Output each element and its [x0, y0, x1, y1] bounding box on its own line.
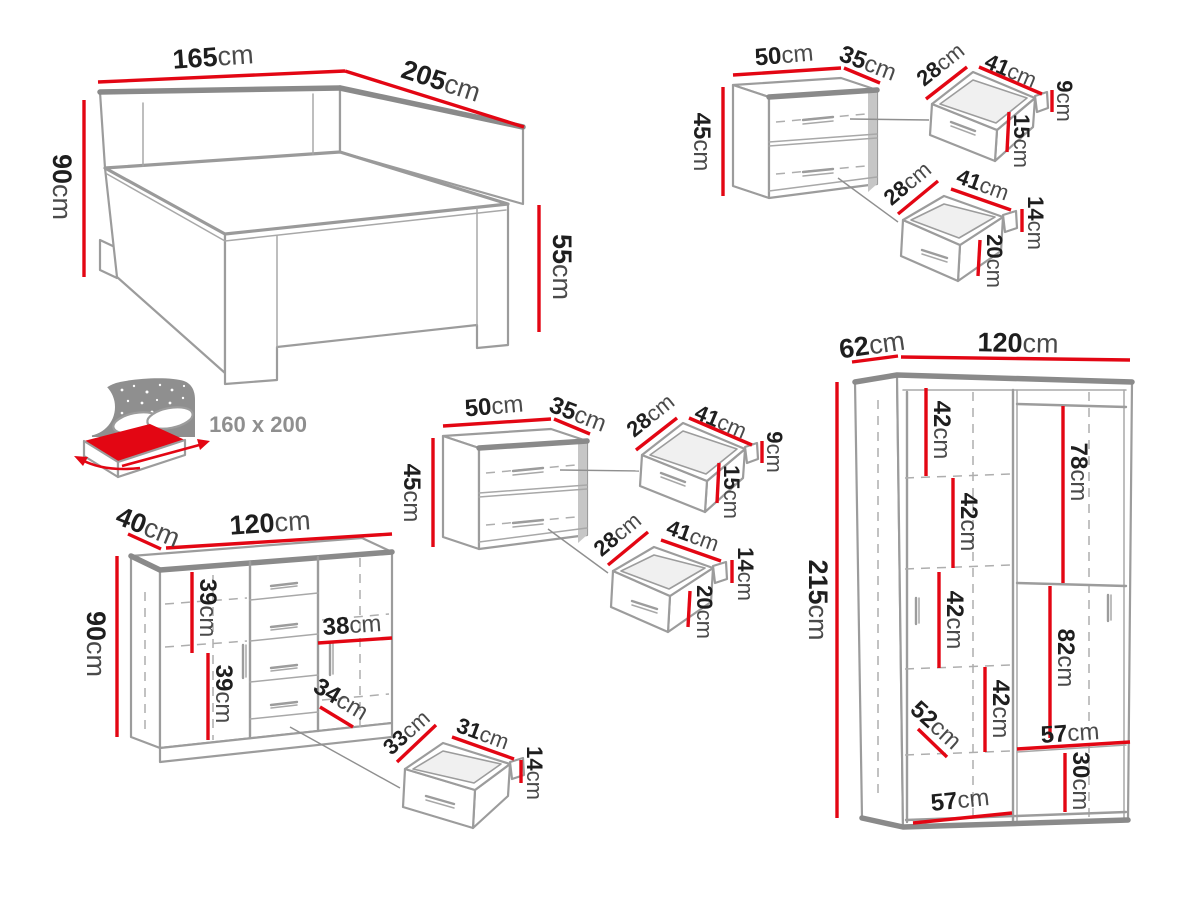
nightstand-front	[479, 441, 587, 549]
nightstand-left-side	[443, 436, 479, 549]
chest-depth-label: 40cm	[112, 501, 184, 554]
bottom-drawer-back-height-label: 14cm	[1024, 196, 1049, 250]
furniture-dimension-diagram: 165cm 205cm 90cm 55cm 160 x 200	[0, 0, 1203, 902]
diagram-svg: 165cm 205cm 90cm 55cm 160 x 200	[0, 0, 1203, 902]
wardrobe-gap4-label: 42cm	[988, 680, 1015, 739]
chest-drawer: 33cm 31cm 14cm	[378, 705, 548, 828]
nightstand-bottom-drawer: 28cm 41cm 14cm 20cm	[878, 156, 1048, 288]
wardrobe-bottom-gap-label: 30cm	[1068, 752, 1095, 811]
nightstand-unit-1: 50cm 35cm 45cm 28cm 41cm 9cm 15cm	[689, 37, 1078, 288]
bottom-drawer-front-height-label: 20cm	[693, 585, 718, 639]
nightstand-left-side	[733, 85, 769, 198]
nightstand-height-label: 45cm	[399, 464, 426, 523]
chest-inner1-label: 39cm	[195, 579, 222, 638]
chest-drawing: 40cm 120cm 90cm 39cm 39cm 38cm 34cm 33cm…	[81, 501, 548, 828]
bottom-drawer-front-height-label: 20cm	[983, 234, 1008, 288]
nightstand-width-label: 50cm	[464, 390, 525, 422]
top-drawer-front-height-label: 15cm	[720, 465, 745, 519]
wardrobe-drawing: 62cm 120cm 215cm 42cm 42cm 42cm 42cm 78c…	[803, 326, 1132, 828]
top-drawer-back-height-label: 9cm	[1053, 80, 1078, 122]
chest-inner2-label: 39cm	[211, 665, 238, 724]
bottom-drawer-depth-label: 28cm	[878, 156, 935, 210]
top-drawer-back-height-label: 9cm	[763, 431, 788, 473]
wardrobe-depth-label: 62cm	[837, 326, 907, 365]
nightstand-unit-2: 50cm 35cm 45cm 28cm 41cm 9cm 15cm	[399, 388, 788, 639]
chest-left-side	[131, 556, 160, 748]
chest-width-label: 120cm	[229, 505, 312, 541]
wardrobe-hanging-top-label: 78cm	[1066, 443, 1093, 502]
wardrobe-right-shelf-width-label: 57cm	[1040, 717, 1100, 748]
bottom-drawer-back-height-label: 14cm	[734, 547, 759, 601]
bed-width-label: 165cm	[172, 39, 255, 75]
nightstand-height-label: 45cm	[689, 113, 716, 172]
wardrobe-left-side	[855, 375, 903, 827]
moon-crescent	[57, 378, 115, 436]
top-drawer-front-height-label: 15cm	[1010, 114, 1035, 168]
chest-drawer-height-label: 14cm	[523, 746, 548, 800]
wardrobe-gap1-label: 42cm	[929, 401, 956, 460]
nightstand-front	[769, 90, 877, 198]
nightstand-top-drawer: 28cm 41cm 9cm 15cm	[621, 388, 787, 519]
bed-height-label: 90cm	[47, 154, 77, 220]
nightstand-top-drawer: 28cm 41cm 9cm 15cm	[911, 37, 1077, 168]
wardrobe-width-label: 120cm	[977, 327, 1059, 358]
wardrobe-gap3-label: 42cm	[942, 591, 969, 650]
bed-size-icon: 160 x 200	[57, 378, 307, 477]
bed-foot-height-label: 55cm	[547, 234, 577, 300]
wardrobe-gap2-label: 42cm	[956, 493, 983, 552]
nightstand-width-label: 50cm	[754, 39, 815, 71]
mattress-size-label: 160 x 200	[209, 412, 307, 437]
wardrobe-height-label: 215cm	[803, 559, 833, 640]
wardrobe-hanging-bottom-label: 82cm	[1053, 629, 1080, 688]
chest-shelf-width-label: 38cm	[322, 609, 382, 640]
bottom-drawer-depth-label: 28cm	[588, 507, 645, 561]
nightstand-bottom-drawer: 28cm 41cm 14cm 20cm	[588, 507, 758, 639]
bed-drawing: 165cm 205cm 90cm 55cm	[47, 39, 577, 384]
chest-height-label: 90cm	[81, 611, 111, 677]
